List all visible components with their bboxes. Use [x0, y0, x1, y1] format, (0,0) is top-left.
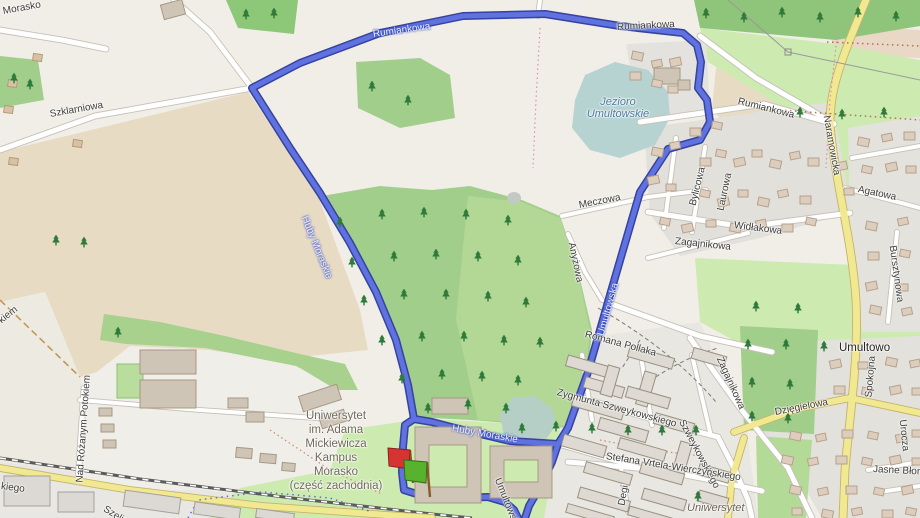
building — [666, 184, 676, 191]
building — [815, 433, 826, 442]
building — [901, 485, 913, 495]
building — [904, 132, 915, 140]
building — [717, 197, 729, 207]
building — [711, 121, 722, 130]
building — [4, 476, 50, 506]
building — [885, 162, 897, 172]
building — [651, 59, 662, 68]
building — [834, 386, 845, 394]
building — [140, 350, 196, 374]
building — [733, 157, 745, 167]
building — [807, 457, 818, 466]
building — [651, 147, 663, 157]
forest-areas — [322, 186, 592, 428]
building — [905, 507, 916, 516]
building — [912, 388, 920, 395]
building — [647, 175, 659, 185]
building — [805, 217, 816, 226]
building — [912, 458, 920, 465]
building — [782, 224, 793, 232]
building — [844, 188, 854, 195]
building — [873, 487, 884, 496]
building — [868, 252, 879, 260]
building — [898, 284, 908, 291]
building — [846, 486, 857, 494]
building — [228, 398, 248, 408]
building — [777, 189, 788, 198]
building — [789, 485, 801, 495]
building — [99, 408, 112, 416]
building — [861, 387, 872, 396]
building — [738, 190, 748, 197]
building — [882, 510, 893, 518]
building — [432, 398, 468, 414]
building — [808, 158, 819, 166]
building — [236, 447, 253, 458]
building — [817, 487, 828, 496]
map-canvas[interactable]: MoraskoSzklarniowaRumiankowaRumiankowaRu… — [0, 0, 920, 518]
building — [260, 453, 277, 463]
building — [895, 433, 907, 443]
building — [792, 508, 802, 515]
building — [681, 223, 693, 233]
conifer-tree-icon — [360, 295, 368, 306]
building — [881, 133, 892, 142]
building — [757, 197, 769, 207]
building — [103, 440, 116, 448]
building — [889, 385, 901, 395]
building — [58, 492, 94, 512]
building — [668, 86, 678, 93]
building — [889, 455, 901, 465]
building — [9, 157, 19, 165]
building — [829, 359, 841, 369]
building — [865, 221, 877, 231]
building — [659, 217, 670, 226]
building — [282, 462, 296, 471]
building — [160, 0, 185, 20]
building — [789, 431, 801, 441]
building — [836, 456, 847, 464]
building — [630, 72, 641, 80]
building — [4, 105, 14, 113]
building — [857, 137, 869, 147]
building — [651, 79, 662, 88]
building — [8, 79, 18, 87]
map-graphics — [0, 0, 920, 518]
building — [706, 220, 716, 227]
building — [669, 141, 680, 150]
building — [73, 139, 83, 147]
building — [901, 307, 912, 316]
building — [861, 457, 872, 466]
building — [835, 161, 847, 171]
building — [909, 359, 920, 368]
building — [869, 305, 881, 315]
building — [729, 223, 741, 233]
building — [865, 281, 877, 291]
building — [246, 412, 264, 422]
building — [752, 150, 762, 157]
building — [867, 431, 878, 440]
building — [700, 158, 711, 166]
building — [101, 424, 114, 432]
building — [33, 53, 43, 61]
building — [669, 57, 681, 67]
building — [842, 430, 853, 438]
building — [678, 80, 690, 90]
conifer-tree-icon — [378, 335, 386, 346]
building — [699, 189, 710, 198]
building — [140, 380, 196, 408]
building — [715, 149, 726, 158]
building — [858, 362, 868, 369]
building — [755, 219, 766, 228]
building — [897, 217, 908, 226]
building — [851, 507, 862, 516]
building — [800, 196, 811, 204]
building — [789, 151, 800, 160]
building — [899, 249, 910, 258]
building — [769, 159, 781, 169]
building — [906, 166, 916, 173]
building — [885, 357, 897, 367]
building — [912, 430, 920, 437]
building — [861, 165, 872, 174]
building — [781, 455, 793, 465]
building — [690, 128, 701, 136]
building — [631, 51, 643, 61]
